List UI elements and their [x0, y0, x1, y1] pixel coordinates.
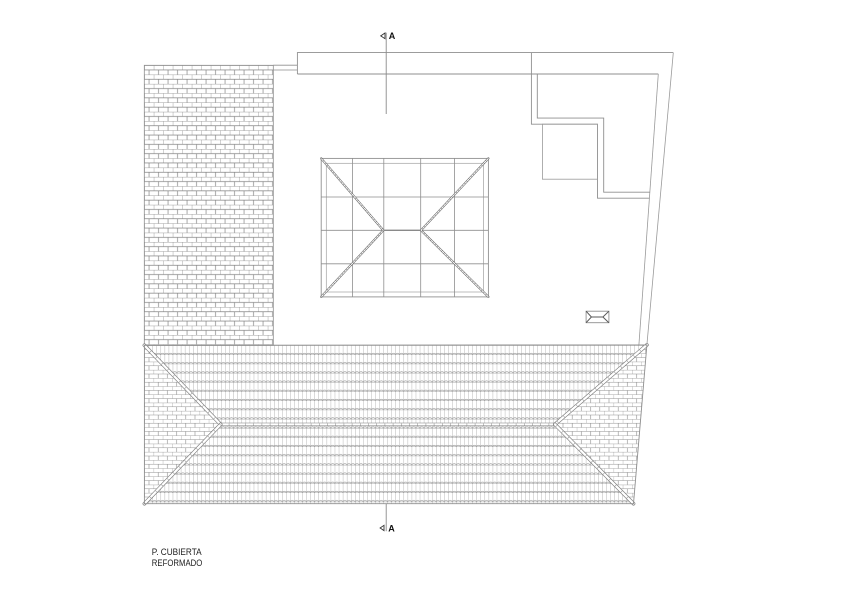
svg-text:REFORMADO: REFORMADO [152, 558, 203, 569]
svg-text:A: A [388, 524, 395, 534]
svg-text:P. CUBIERTA: P. CUBIERTA [152, 547, 202, 558]
svg-text:A: A [389, 31, 396, 41]
